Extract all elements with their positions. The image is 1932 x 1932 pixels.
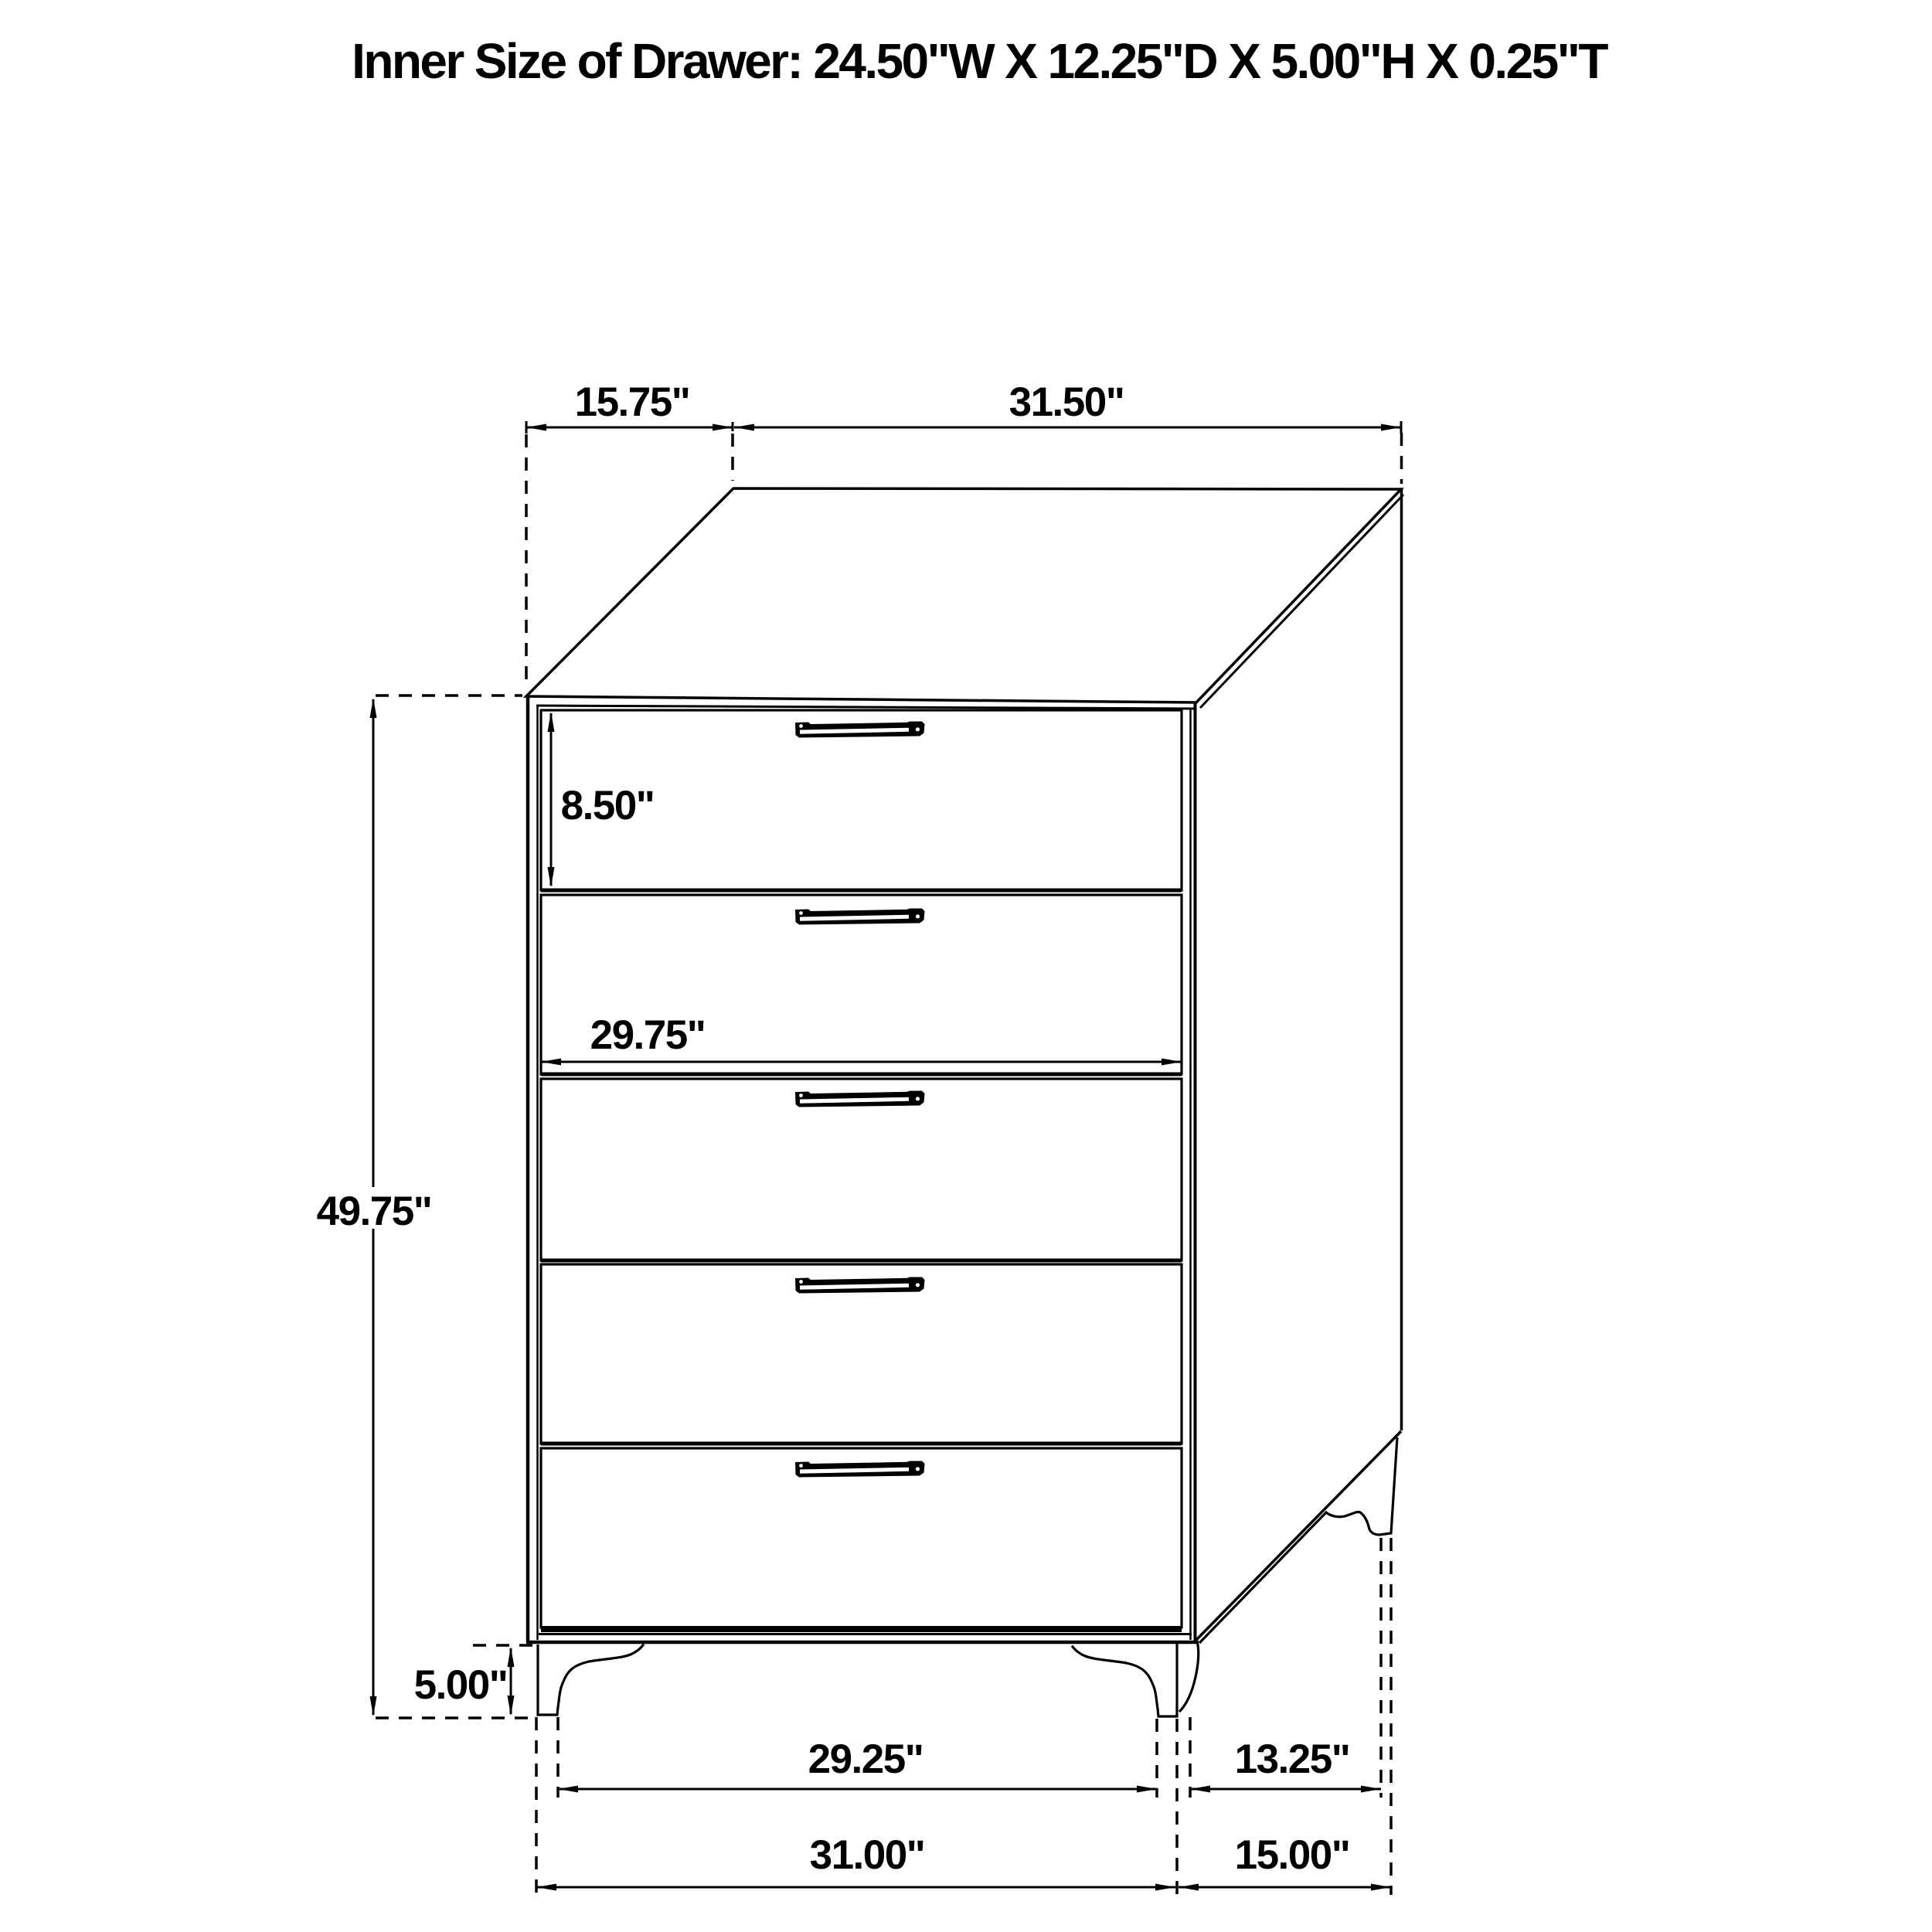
svg-text:15.75": 15.75" bbox=[575, 379, 690, 425]
svg-text:Inner Size of Drawer: 24.50"W: Inner Size of Drawer: 24.50"W X 12.25"D … bbox=[352, 33, 1608, 89]
svg-text:8.50": 8.50" bbox=[561, 783, 655, 828]
svg-text:29.75": 29.75" bbox=[590, 1012, 706, 1058]
svg-text:49.75": 49.75" bbox=[317, 1189, 432, 1234]
svg-text:5.00": 5.00" bbox=[414, 1662, 508, 1708]
svg-text:29.25": 29.25" bbox=[808, 1736, 923, 1782]
svg-text:31.00": 31.00" bbox=[810, 1832, 925, 1878]
svg-text:15.00": 15.00" bbox=[1235, 1832, 1350, 1878]
svg-text:13.25": 13.25" bbox=[1235, 1736, 1350, 1782]
svg-text:31.50": 31.50" bbox=[1009, 379, 1124, 425]
